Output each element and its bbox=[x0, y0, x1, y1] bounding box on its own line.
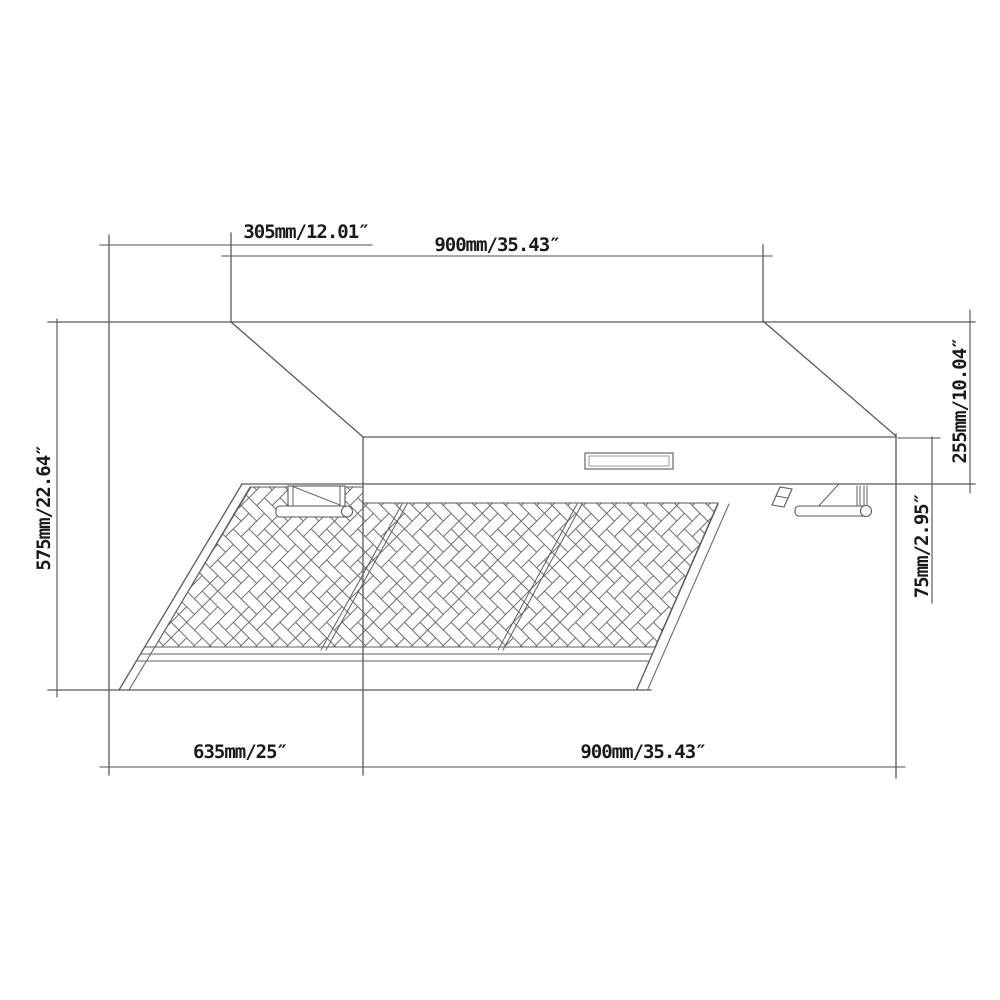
canopy-left-slope bbox=[231, 322, 363, 437]
right-handle-rail bbox=[795, 506, 867, 516]
range-hood-drawing: 305mm/12.01″ 900mm/35.43″ 575mm/22.64″ 2… bbox=[0, 0, 1000, 1000]
label-front-height: 255mm/10.04″ bbox=[949, 338, 971, 463]
right-rail-end-cap bbox=[861, 506, 872, 517]
label-top-depth: 305mm/12.01″ bbox=[243, 221, 368, 243]
filter-mesh bbox=[155, 487, 718, 647]
label-bottom-depth: 635mm/25″ bbox=[193, 741, 287, 763]
canopy-right-slope bbox=[763, 321, 896, 436]
label-side-height: 575mm/22.64″ bbox=[33, 445, 55, 570]
left-rail-end-cap bbox=[342, 506, 353, 517]
dimension-drawing-canvas: 305mm/12.01″ 900mm/35.43″ 575mm/22.64″ 2… bbox=[0, 0, 1000, 1000]
label-bottom-width: 900mm/35.43″ bbox=[580, 741, 705, 763]
left-handle-rail bbox=[276, 506, 349, 517]
label-top-width: 900mm/35.43″ bbox=[434, 234, 559, 256]
baffle-filter-area bbox=[119, 484, 729, 690]
control-panel bbox=[585, 453, 673, 469]
label-lip-height: 75mm/2.95″ bbox=[911, 494, 933, 598]
dimension-labels: 305mm/12.01″ 900mm/35.43″ 575mm/22.64″ 2… bbox=[33, 221, 971, 763]
